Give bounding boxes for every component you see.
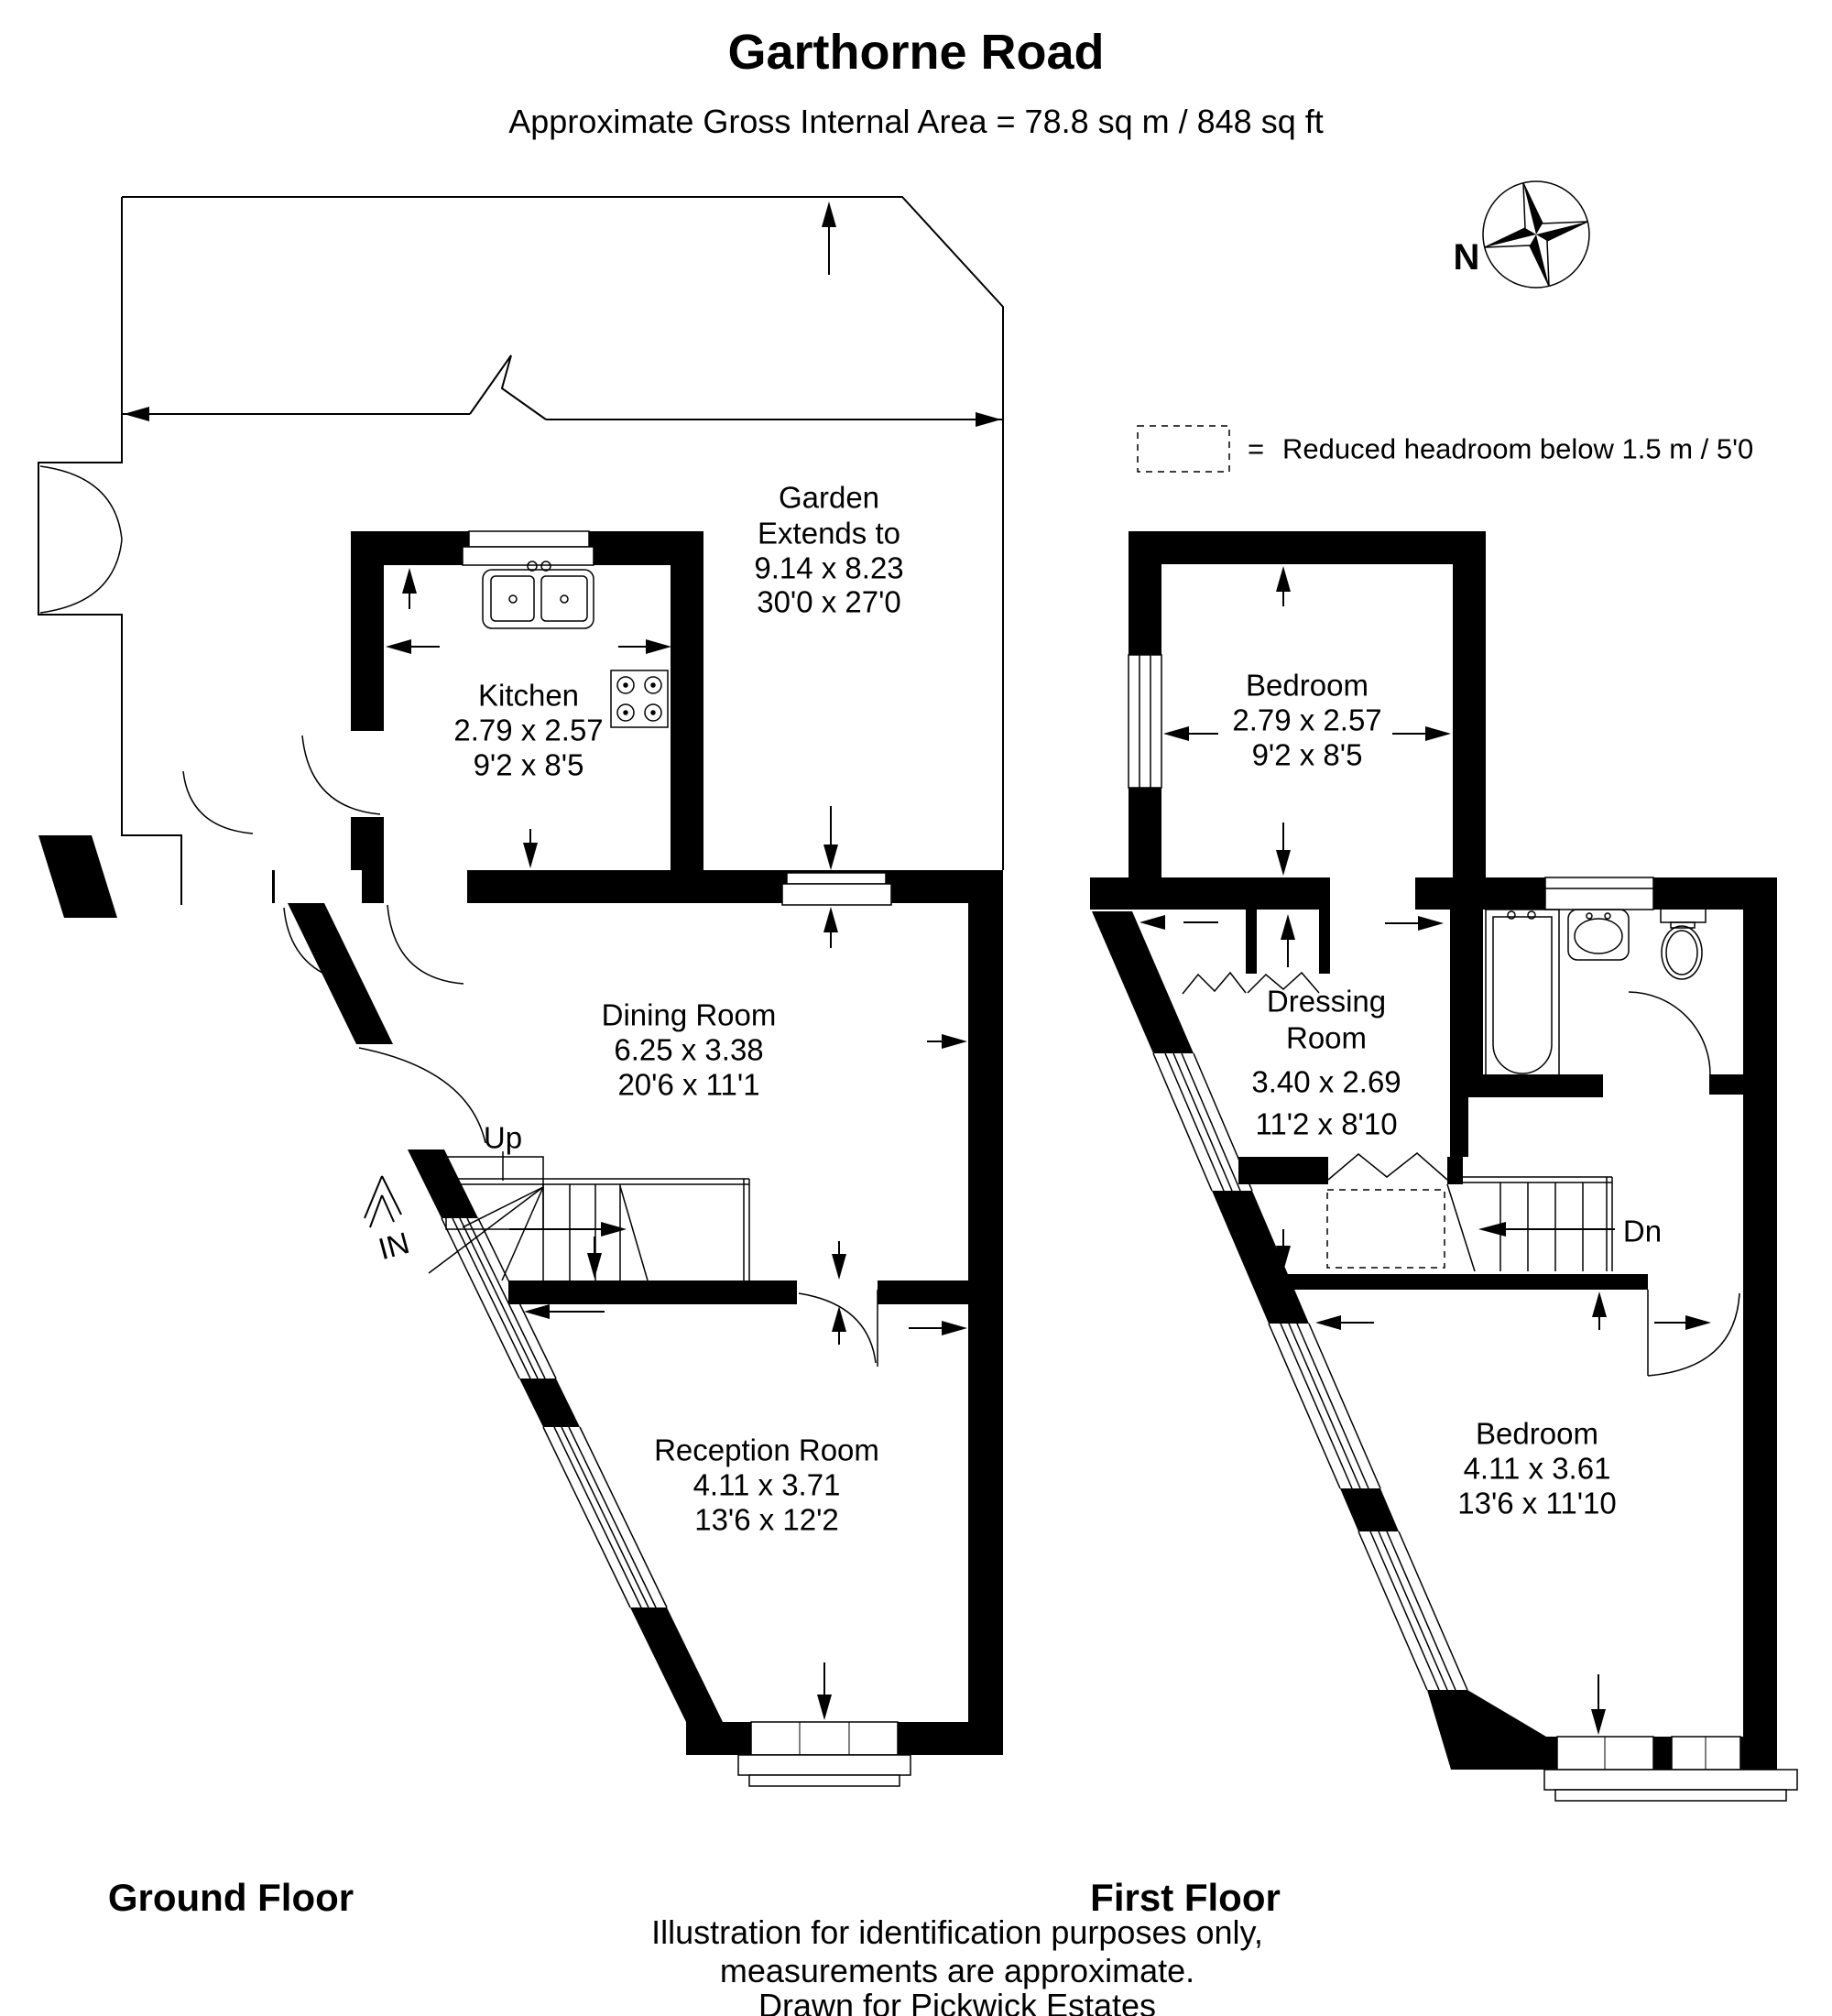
compass-rose <box>1483 181 1589 288</box>
bedroom-bottom-label: Bedroom <box>1476 1419 1598 1449</box>
disclaimer-line3: Drawn for Pickwick Estates <box>758 1989 1156 2016</box>
reception-bay-window <box>738 1722 911 1786</box>
bathroom-window <box>1545 877 1653 910</box>
page-title: Garthorne Road <box>727 27 1104 77</box>
kitchen-dim-metric: 2.79 x 2.57 <box>453 715 603 746</box>
kitchen-window <box>463 531 594 565</box>
garden-label: Garden <box>779 483 879 513</box>
dressing-room-dim-imperial: 11'2 x 8'10 <box>1255 1109 1397 1139</box>
first-right-wall <box>1743 877 1777 1770</box>
bedroom-top-dim-metric: 2.79 x 2.57 <box>1232 705 1381 736</box>
garden-wall-stub <box>38 835 117 918</box>
basin <box>1568 910 1629 960</box>
first-floor-plan <box>1090 531 1797 1801</box>
bedroom-top-label: Bedroom <box>1246 670 1369 701</box>
garden-dim-metric: 9.14 x 8.23 <box>754 553 903 583</box>
bathroom-door-arc <box>1629 992 1710 1074</box>
ground-floor-label: Ground Floor <box>108 1879 354 1917</box>
bathroom-left-wall <box>1450 910 1483 1074</box>
dressing-room-label-2: Room <box>1286 1023 1367 1053</box>
reception-room-dim-metric: 4.11 x 3.71 <box>693 1470 841 1500</box>
kitchen-label: Kitchen <box>478 681 579 711</box>
dining-room-dim-metric: 6.25 x 3.38 <box>614 1035 763 1065</box>
bedroom-top-dim-imperial: 9'2 x 8'5 <box>1252 740 1363 770</box>
floorplan-canvas: Garthorne Road Approximate Gross Interna… <box>0 0 1832 2016</box>
kitchen-hob <box>611 670 668 727</box>
compass-north-label: N <box>1454 239 1480 276</box>
dining-room-dim-imperial: 20'6 x 11'1 <box>617 1070 759 1100</box>
legend-equals: = <box>1248 435 1264 463</box>
garden-dim-imperial: 30'0 x 27'0 <box>757 587 901 617</box>
kitchen-dim-imperial: 9'2 x 8'5 <box>474 750 584 780</box>
bedroom-bottom-dim-metric: 4.11 x 3.61 <box>1464 1454 1611 1484</box>
reception-room-label: Reception Room <box>654 1435 879 1466</box>
floorplan-drawing <box>0 0 1832 2016</box>
disclaimer-line2: measurements are approximate. <box>720 1955 1194 1988</box>
garden-label-2: Extends to <box>758 518 900 549</box>
reception-room-dim-imperial: 13'6 x 12'2 <box>694 1505 839 1535</box>
ground-floor-plan <box>38 197 1003 1786</box>
ground-right-wall <box>968 870 1003 1755</box>
legend-swatch <box>1138 426 1229 472</box>
dressing-room-label: Dressing <box>1267 986 1386 1017</box>
divider-wall <box>508 1280 797 1304</box>
disclaimer-line1: Illustration for identification purposes… <box>651 1916 1263 1949</box>
first-stairs <box>1327 1177 1612 1271</box>
page-subtitle: Approximate Gross Internal Area = 78.8 s… <box>508 105 1323 138</box>
dining-window <box>782 873 891 905</box>
legend-text: Reduced headroom below 1.5 m / 5'0 <box>1282 435 1753 463</box>
stairs-dn-label: Dn <box>1623 1216 1662 1247</box>
dressing-room-dim-metric: 3.40 x 2.69 <box>1251 1067 1401 1097</box>
bath <box>1486 910 1559 1081</box>
dining-room-label: Dining Room <box>602 1000 777 1030</box>
bedroom-top-walls <box>1090 531 1777 910</box>
first-floor-label: First Floor <box>1090 1879 1281 1917</box>
under-bath-wall <box>1450 1074 1603 1097</box>
entrance-arrow <box>365 1176 401 1227</box>
stairs-up-label: Up <box>484 1123 522 1153</box>
kitchen-sink <box>483 561 594 628</box>
bedroom-bottom-dim-imperial: 13'6 x 11'10 <box>1457 1488 1616 1519</box>
toilet <box>1661 906 1706 979</box>
reduced-headroom-area <box>1327 1190 1445 1268</box>
bedroom-top-window <box>1129 655 1161 788</box>
dining-top-wall <box>272 870 1003 903</box>
